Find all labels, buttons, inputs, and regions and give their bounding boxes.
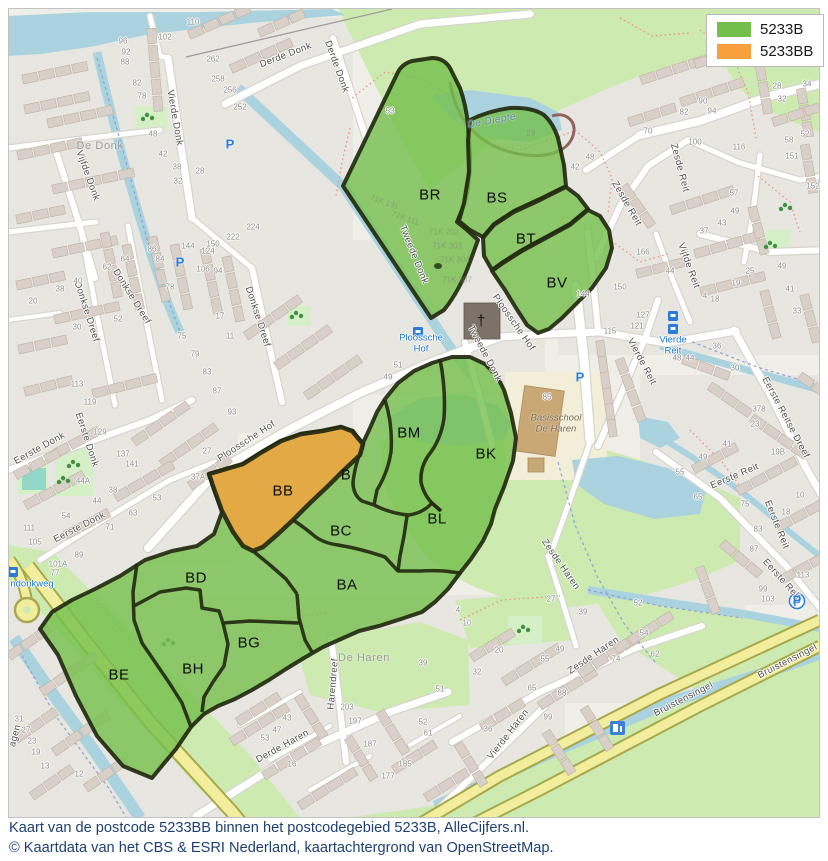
caption: Kaart van de postcode 5233BB binnen het … (9, 819, 821, 858)
legend-item-5233BB: 5233BB (717, 43, 813, 60)
caption-line-1: Kaart van de postcode 5233BB binnen het … (9, 819, 821, 839)
legend-item-5233B: 5233B (717, 21, 813, 38)
bus-stop-icon (668, 311, 678, 321)
map-canvas: P (0, 0, 828, 861)
map-screenshot: P Derde DonkDerde DonkVierde Don (0, 0, 828, 861)
parking-circle-icon: P (790, 594, 805, 610)
legend: 5233B 5233BB (706, 14, 824, 67)
bus-stop-icon (8, 567, 18, 577)
legend-swatch-5233B (717, 22, 751, 37)
bus-stop-icon (413, 327, 423, 337)
svg-text:P: P (793, 597, 800, 609)
church-building (464, 303, 500, 339)
bus-stop-icon (668, 324, 678, 334)
legend-label-5233B: 5233B (760, 21, 803, 38)
school-building (515, 386, 564, 457)
caption-line-2: © Kaartdata van het CBS & ESRI Nederland… (9, 839, 821, 859)
tree-blob-icon (434, 263, 442, 269)
fuel-station-icon (610, 721, 625, 735)
legend-label-5233BB: 5233BB (760, 43, 813, 60)
legend-swatch-5233BB (717, 44, 751, 59)
